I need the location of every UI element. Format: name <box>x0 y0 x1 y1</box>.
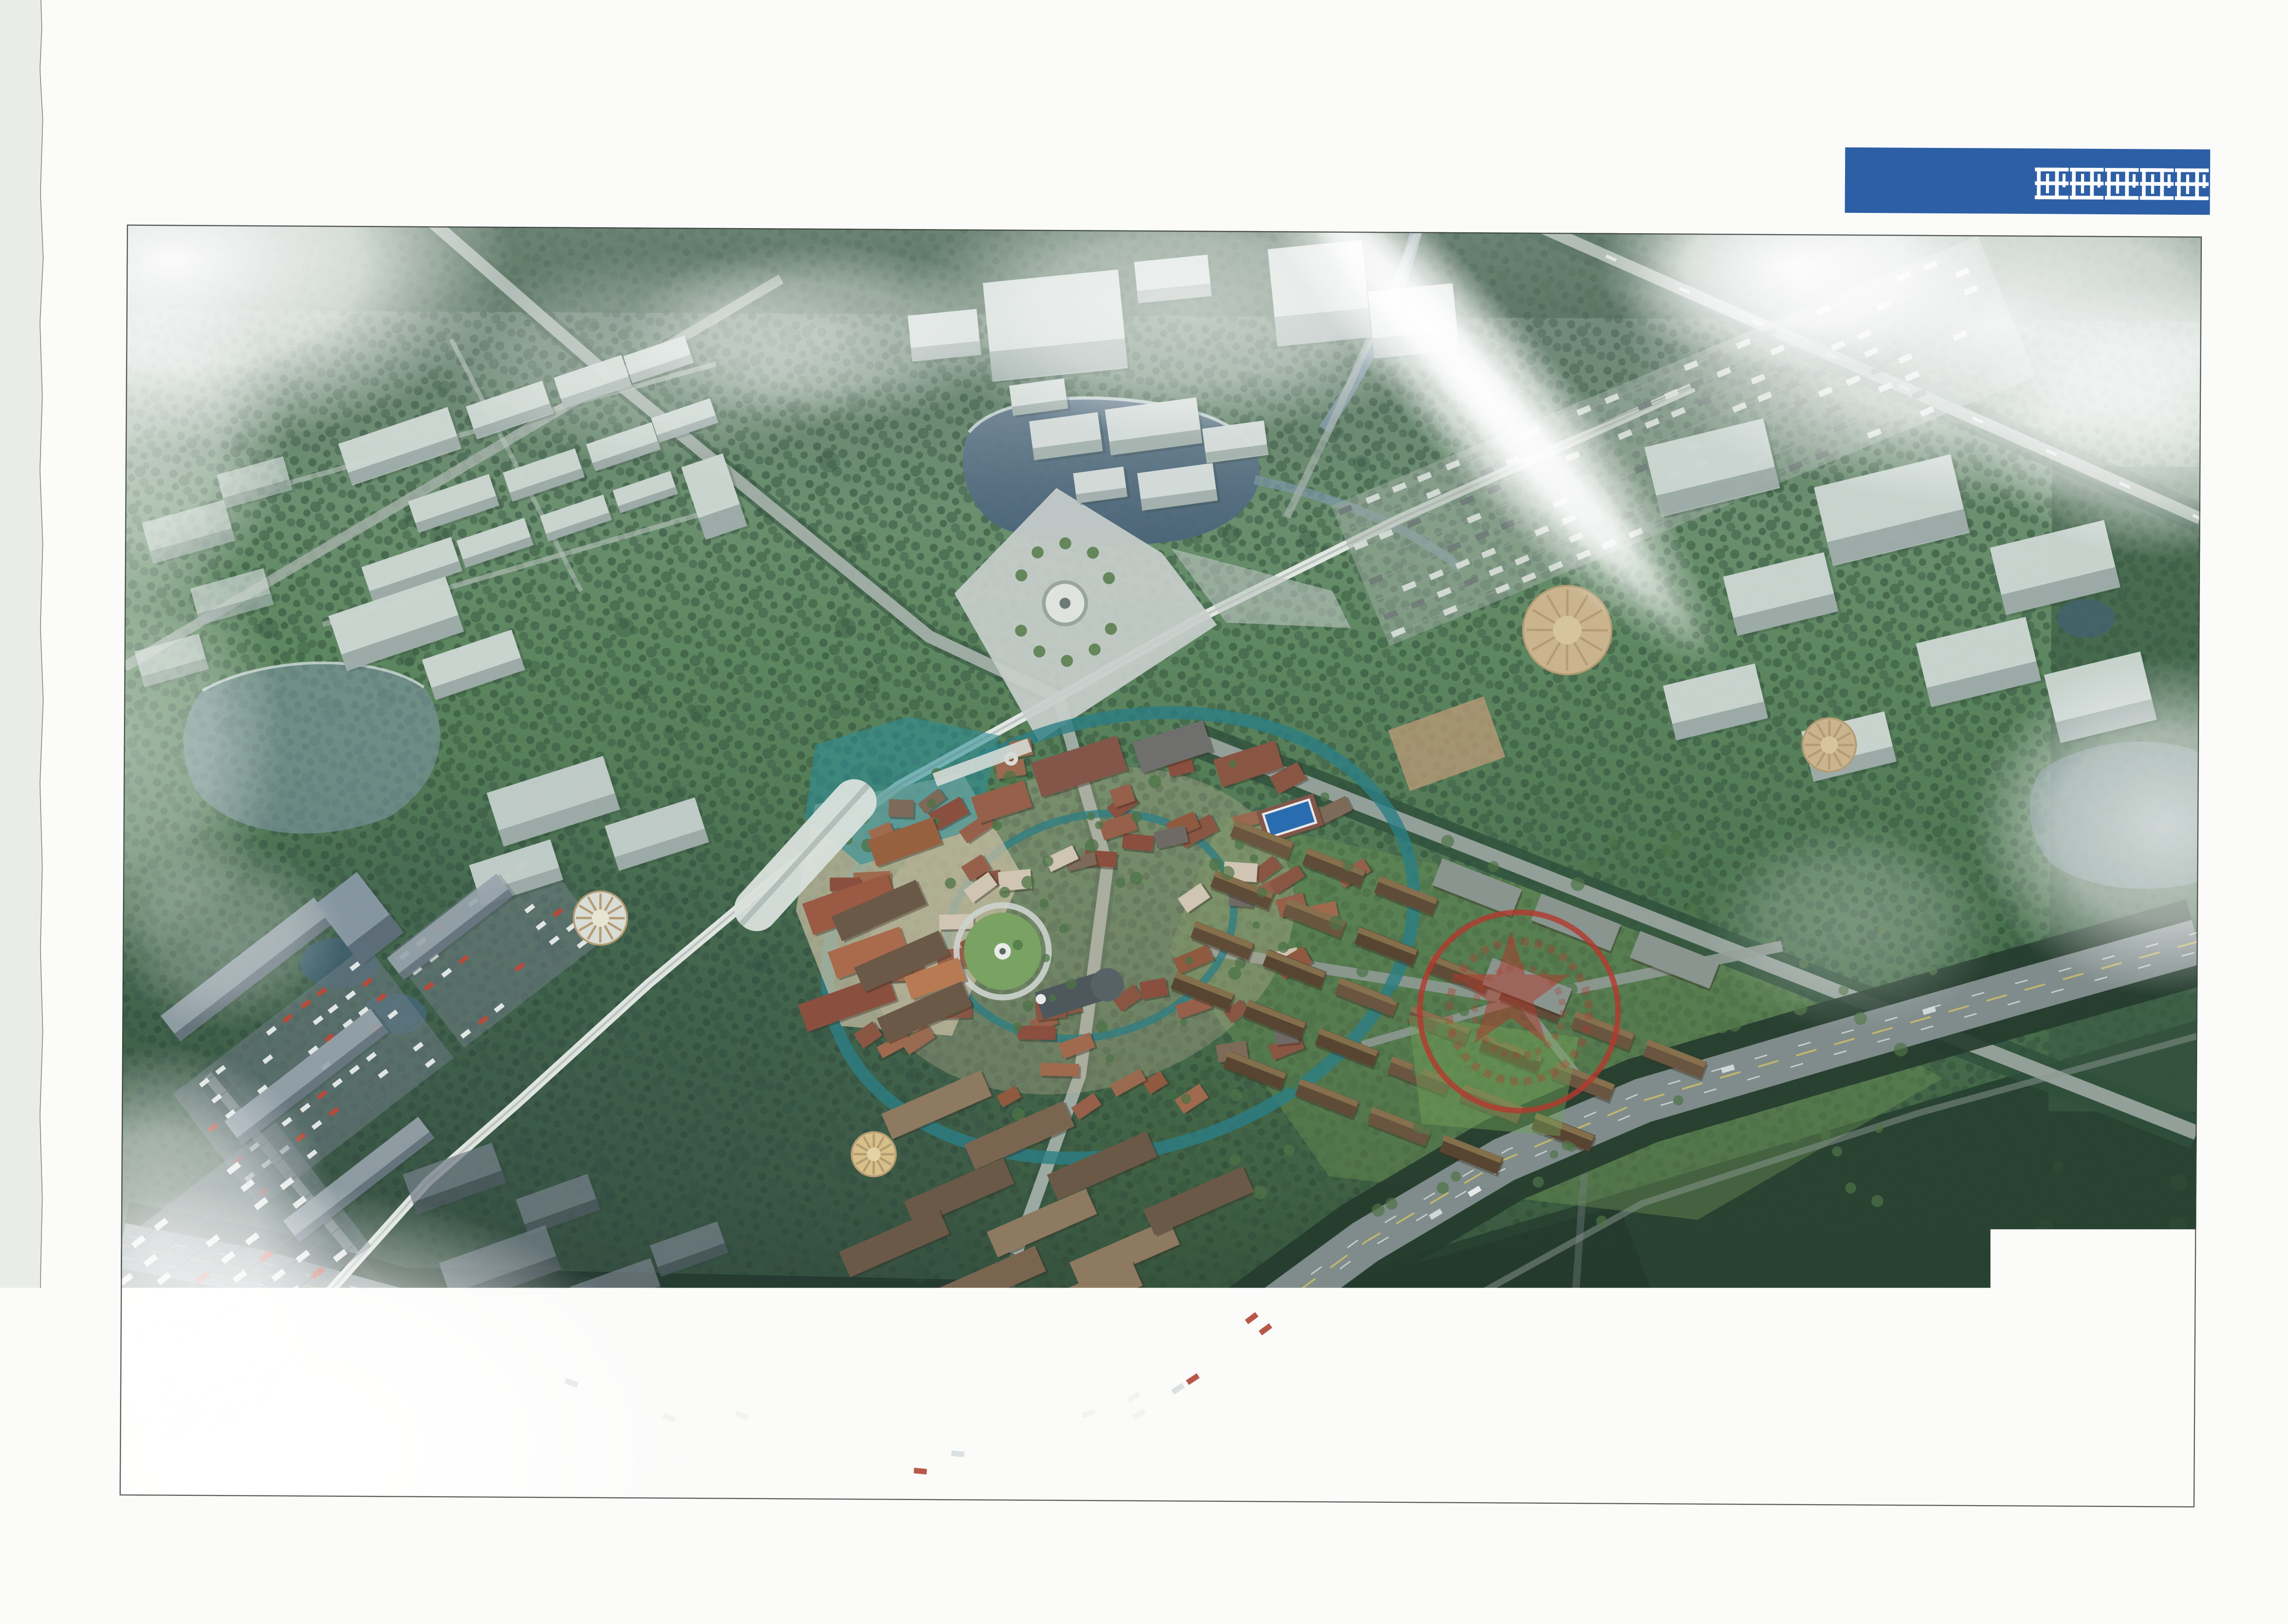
svg-text:6: 6 <box>1835 1541 1854 1577</box>
